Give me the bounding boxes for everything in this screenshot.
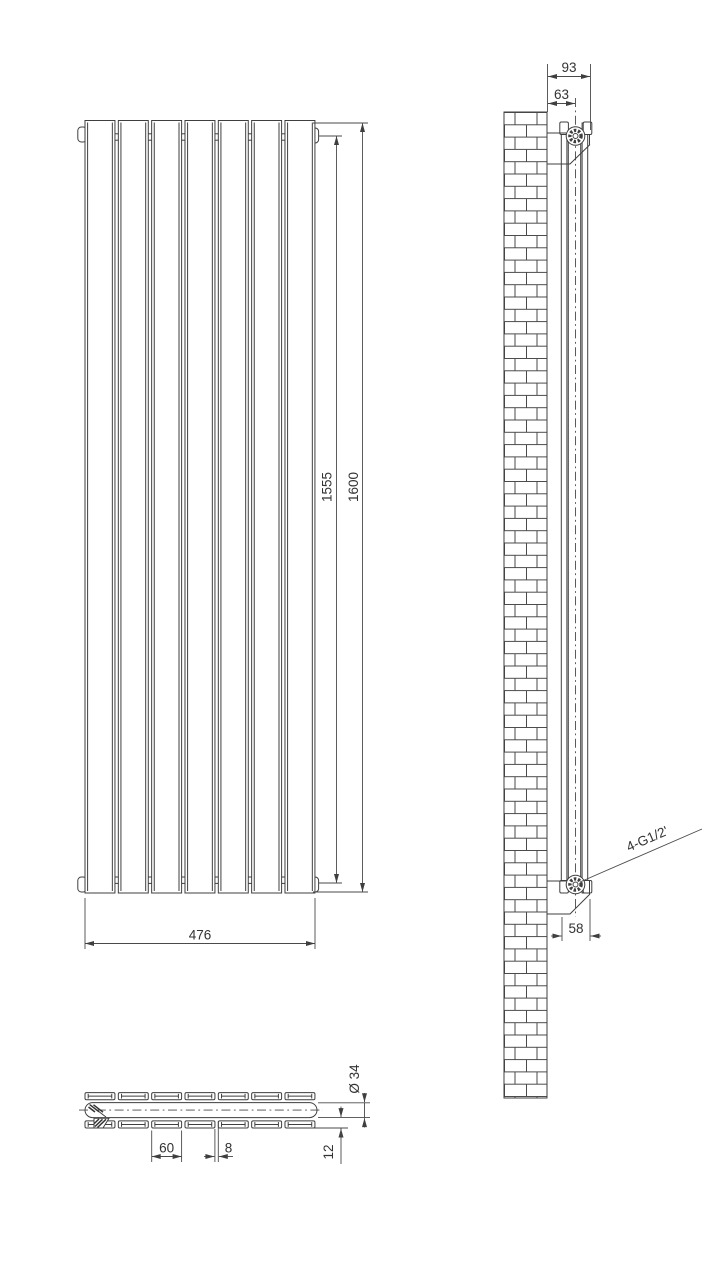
- bottom-mounting-bracket: [547, 875, 590, 914]
- dim-height-overall-label: 1600: [346, 472, 361, 502]
- dim-wall-to-front-label: 93: [561, 60, 576, 75]
- connection-leader: 4-G1/2': [580, 823, 702, 882]
- dimension-depth: 58: [551, 899, 601, 941]
- dim-width-label: 476: [189, 928, 212, 943]
- dim-panel-gap-label: 8: [225, 1141, 233, 1156]
- plan-view: 60 8 Ø 34 12: [79, 1064, 370, 1164]
- dim-panel-depth-label: 12: [321, 1144, 336, 1159]
- connection-label: 4-G1/2': [624, 823, 670, 854]
- radiator-panels: [85, 121, 315, 894]
- dimension-height-overall: 1600: [313, 123, 368, 892]
- dimension-width: 476: [85, 898, 315, 949]
- side-view: 93 63 58 4-G1/2': [504, 60, 702, 1098]
- brick-wall: [504, 112, 547, 1098]
- dimension-tube-diameter: Ø 34: [318, 1064, 370, 1128]
- front-view: 1600 1555 476: [78, 121, 368, 950]
- dimension-wall-to-center: 63: [548, 87, 575, 104]
- dimension-panel-depth: 12: [314, 1107, 348, 1165]
- dim-tube-diameter-label: Ø 34: [347, 1064, 362, 1094]
- dim-wall-to-center-label: 63: [554, 87, 569, 102]
- dim-panel-width-label: 60: [159, 1141, 174, 1156]
- dimension-height-centers: 1555: [319, 136, 343, 883]
- dim-height-centers-label: 1555: [320, 472, 335, 502]
- dim-depth-label: 58: [568, 921, 583, 936]
- dimension-panel-width: 60: [152, 1131, 182, 1163]
- radiator-side-profile: [560, 98, 592, 917]
- radiator-technical-drawing: 1600 1555 476: [0, 0, 704, 1280]
